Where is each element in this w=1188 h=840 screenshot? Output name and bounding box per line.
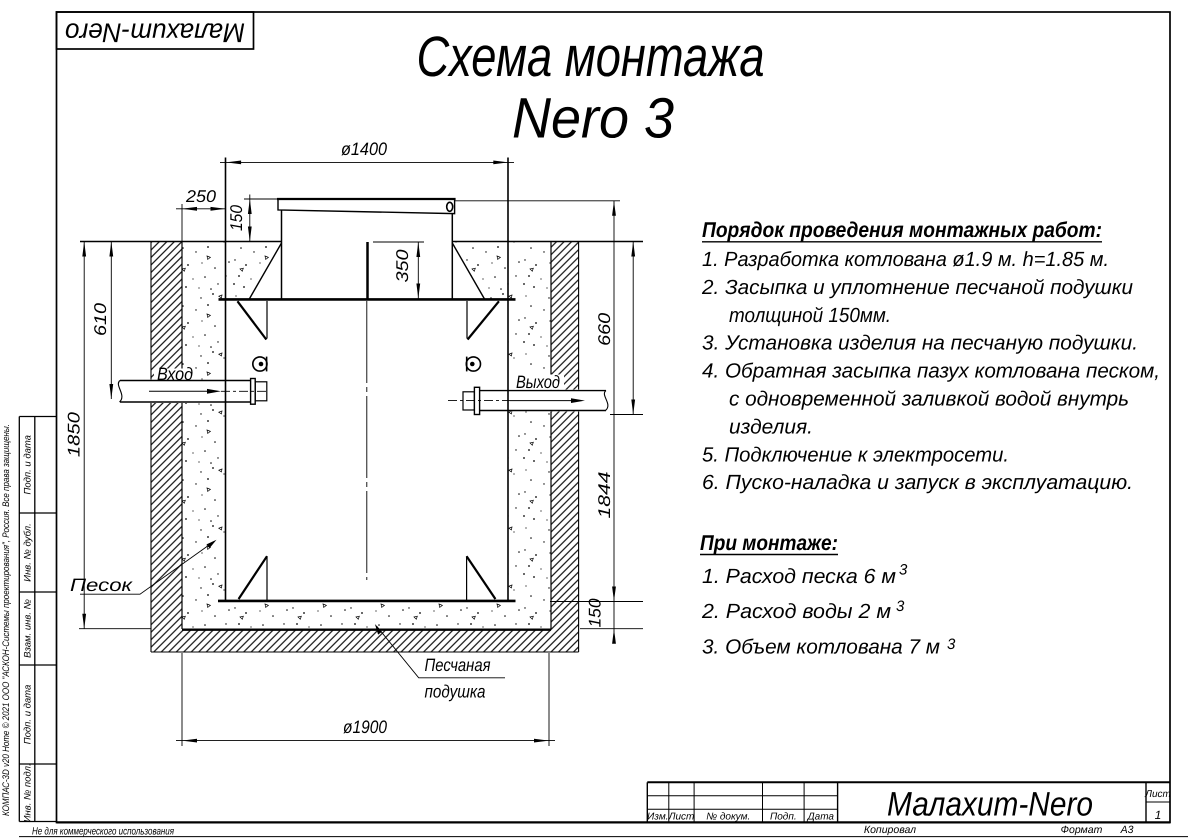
svg-text:3: 3 [899,562,908,579]
svg-text:660: 660 [595,312,614,346]
svg-text:Порядок проведения монтажных р: Порядок проведения монтажных работ: [702,218,1102,242]
svg-text:3: 3 [947,636,956,653]
svg-text:Вход: Вход [157,364,193,384]
svg-text:2. Засыпка и уплотнение песчан: 2. Засыпка и уплотнение песчаной подушки [701,276,1133,299]
svg-text:Подп.: Подп. [770,812,797,823]
svg-text:2. Расход воды 2 м: 2. Расход воды 2 м [701,600,891,623]
svg-text:3. Объем котлована 7 м: 3. Объем котлована 7 м [702,636,940,659]
svg-text:Инв. № подл.: Инв. № подл. [23,763,34,822]
svg-text:подушка: подушка [425,682,486,702]
svg-text:толщиной 150мм.: толщиной 150мм. [729,304,891,327]
svg-text:1844: 1844 [595,472,614,519]
svg-text:5. Подключение к электросети.: 5. Подключение к электросети. [702,443,1009,466]
svg-text:3: 3 [896,598,905,615]
svg-text:Малахит-Nero: Малахит-Nero [65,17,245,47]
svg-text:Подп. и дата: Подп. и дата [23,435,34,494]
svg-text:с одновременной заливкой водой: с одновременной заливкой водой внутрь [729,388,1129,411]
svg-text:610: 610 [91,302,110,336]
svg-text:ø1400: ø1400 [341,139,387,159]
svg-text:Nero 3: Nero 3 [512,87,674,151]
svg-text:Взам. инв. №: Взам. инв. № [23,599,34,658]
svg-text:250: 250 [185,187,217,206]
svg-text:Песчаная: Песчаная [425,655,491,675]
svg-text:1: 1 [1155,808,1162,822]
svg-text:Выход: Выход [516,372,560,392]
svg-text:Изм.: Изм. [647,812,668,823]
svg-text:ø1900: ø1900 [343,717,387,737]
svg-text:Не для коммерческого использов: Не для коммерческого использования [32,826,174,838]
svg-text:1. Расход песка 6 м: 1. Расход песка 6 м [702,565,896,588]
svg-text:150: 150 [586,598,605,628]
svg-text:4. Обратная засыпка пазух котл: 4. Обратная засыпка пазух котлована песк… [702,360,1160,383]
svg-text:1. Разработка котлована ø1.9 м: 1. Разработка котлована ø1.9 м. h=1.85 м… [702,248,1109,271]
svg-text:Лист: Лист [668,812,695,823]
svg-text:№ докум.: № докум. [706,812,750,823]
svg-text:3. Установка изделия на песчан: 3. Установка изделия на песчаную подушки… [702,332,1138,355]
svg-text:6. Пуско-наладка и запуск в эк: 6. Пуско-наладка и запуск в эксплуатацию… [702,471,1133,494]
svg-text:Подп. и дата: Подп. и дата [23,685,34,744]
svg-text:Копировал: Копировал [864,824,916,836]
svg-text:150: 150 [227,205,246,231]
svg-text:Инв. № дубл.: Инв. № дубл. [23,523,34,581]
svg-text:Лист: Лист [1144,789,1171,800]
svg-text:При монтаже:: При монтаже: [700,531,838,555]
svg-text:Дата: Дата [807,812,835,823]
svg-text:КОМПАС-3D v20 Home © 2021 ООО: КОМПАС-3D v20 Home © 2021 ООО "АСКОН-Сис… [1,424,12,816]
svg-text:изделия.: изделия. [729,415,813,438]
svg-text:А3: А3 [1120,824,1134,836]
svg-text:350: 350 [393,249,412,283]
svg-text:Малахит-Nero: Малахит-Nero [887,786,1093,824]
svg-text:1850: 1850 [65,411,84,457]
svg-text:Формат: Формат [1061,824,1103,836]
svg-text:Схема монтажа: Схема монтажа [417,25,765,89]
svg-text:Песок: Песок [70,575,134,595]
